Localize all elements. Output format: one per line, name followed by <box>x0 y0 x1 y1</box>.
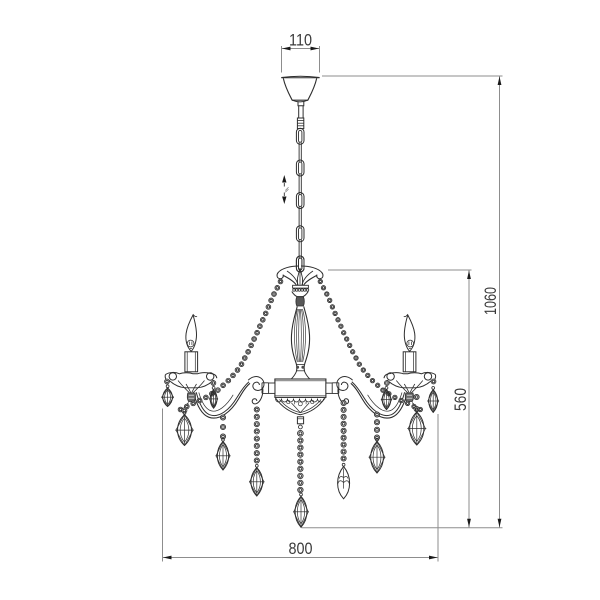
svg-text:800: 800 <box>289 540 313 558</box>
svg-text:1060: 1060 <box>482 287 500 315</box>
svg-text:110: 110 <box>289 32 312 50</box>
svg-text:560: 560 <box>452 388 470 411</box>
